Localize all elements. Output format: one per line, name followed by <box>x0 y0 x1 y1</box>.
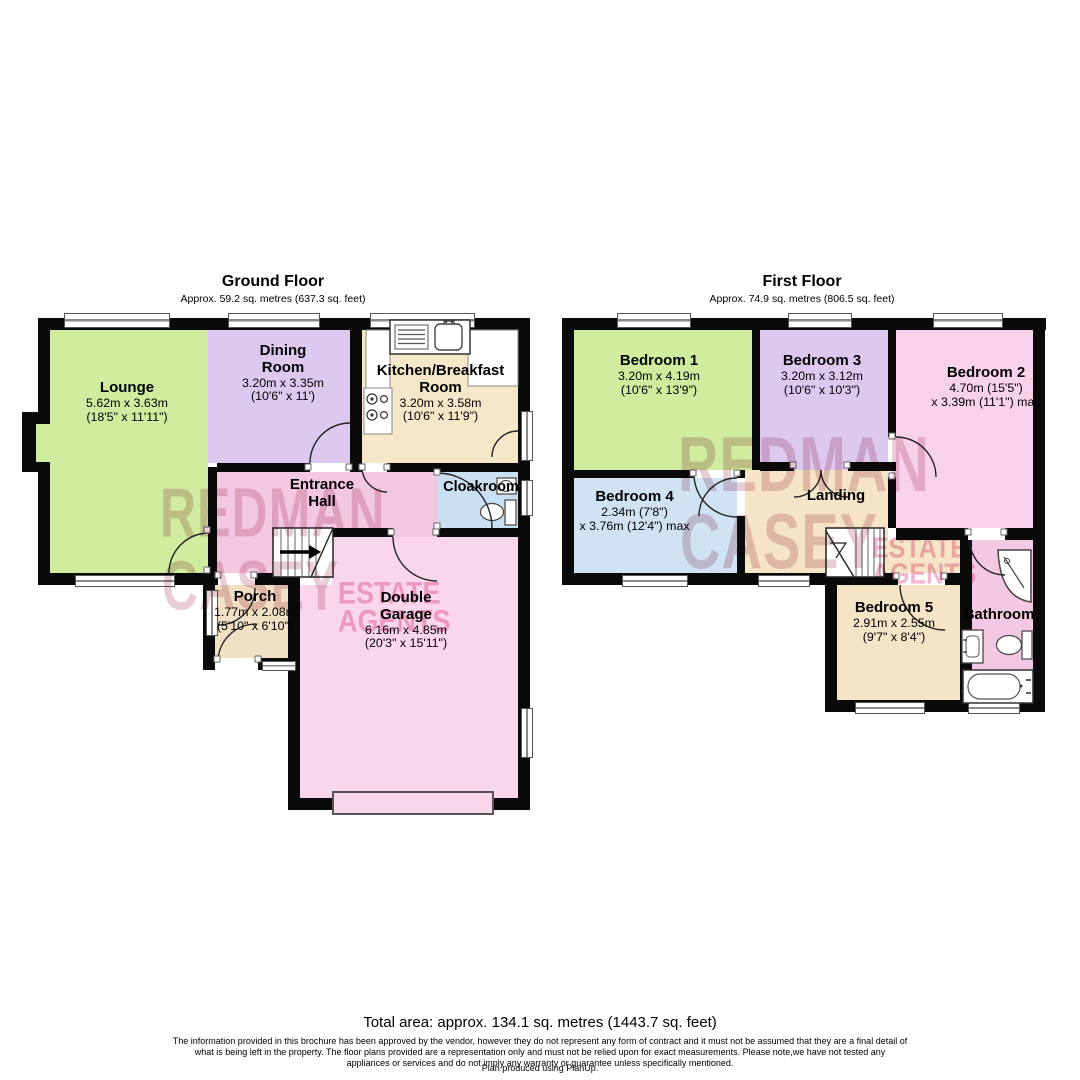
room-name: Bedroom 1 <box>599 353 719 370</box>
wall <box>945 573 960 585</box>
room-bedroom1 <box>574 330 752 470</box>
floorplan-canvas: Ground Floor Approx. 59.2 sq. metres (63… <box>0 0 1080 1080</box>
wall <box>848 462 896 471</box>
room-dim-imperial: x 3.39m (11'1") max <box>921 396 1051 410</box>
room-dim-metric: 5.62m x 3.63m <box>47 397 207 411</box>
room-dim-imperial: (10'6" x 11') <box>223 390 343 404</box>
room-dim-imperial: (20'3" x 15'11") <box>346 637 466 651</box>
room-name: Bedroom 5 <box>834 600 954 617</box>
produced-by-text: Plan produced using PlanUp. <box>0 1063 1080 1073</box>
room-name: Lounge <box>47 380 207 397</box>
first-floor-heading: First Floor Approx. 74.9 sq. metres (806… <box>652 273 952 305</box>
wall <box>385 528 393 537</box>
room-dim-imperial: x 3.76m (12'4") max <box>572 520 697 534</box>
wall <box>562 330 574 585</box>
wall <box>760 462 794 471</box>
window <box>262 661 296 671</box>
room-hall-garage-opening <box>393 528 437 537</box>
room-entrance-hall-lower <box>217 528 273 573</box>
room-name: Dining Room <box>247 343 319 377</box>
room-name: Landing <box>786 488 886 505</box>
wall <box>562 470 694 478</box>
wall <box>888 318 896 437</box>
wall <box>737 470 745 478</box>
room-label-bedroom5: Bedroom 5 2.91m x 2.55m (9'7" x 8'4") <box>834 600 954 645</box>
room-name: Kitchen/Breakfast Room <box>363 363 518 397</box>
room-dim-metric: 2.34m (7'8") <box>572 506 697 520</box>
stairs-ground <box>273 528 333 577</box>
room-dim-metric: 3.20m x 3.12m <box>762 370 882 384</box>
room-name: Cloakroom <box>426 479 536 495</box>
room-dim-metric: 1.77m x 2.08m <box>195 606 315 620</box>
window <box>521 411 533 461</box>
window <box>933 313 1003 328</box>
window <box>370 313 475 328</box>
window <box>64 313 170 328</box>
room-lounge <box>50 330 208 573</box>
room-garage-upper <box>332 537 518 585</box>
total-area-text: Total area: approx. 134.1 sq. metres (14… <box>0 1014 1080 1031</box>
window <box>788 313 852 328</box>
room-dim-imperial: (18'5" x 11'11") <box>47 411 207 425</box>
wall <box>437 528 518 537</box>
first-floor-area: Approx. 74.9 sq. metres (806.5 sq. feet) <box>652 293 952 305</box>
room-dim-imperial: (10'6" x 10'3") <box>762 384 882 398</box>
wall <box>350 318 362 472</box>
room-dim-metric: 6.16m x 4.85m <box>346 624 466 638</box>
room-dim-imperial: (10'6" x 13'9") <box>599 384 719 398</box>
room-dim-metric: 4.70m (15'5") <box>921 382 1051 396</box>
wall <box>1005 528 1045 540</box>
stairs-direction-arrow-icon <box>309 545 321 559</box>
room-landing <box>745 470 888 573</box>
room-label-cloakroom: Cloakroom <box>426 479 536 495</box>
room-bedroom2 <box>896 330 1033 528</box>
room-dim-metric: 3.20m x 4.19m <box>599 370 719 384</box>
room-name: Bathroom <box>944 607 1054 624</box>
room-name: Double Garage <box>371 590 441 624</box>
room-label-kitchen: Kitchen/Breakfast Room 3.20m x 3.58m (10… <box>363 363 518 424</box>
room-label-lounge: Lounge 5.62m x 3.63m (18'5" x 11'11") <box>47 380 207 425</box>
wall <box>752 318 760 470</box>
wall <box>208 467 217 573</box>
room-dim-metric: 3.20m x 3.58m <box>363 397 518 411</box>
wall <box>896 528 968 540</box>
room-name: Porch <box>195 589 315 606</box>
room-label-bedroom4: Bedroom 4 2.34m (7'8") x 3.76m (12'4") m… <box>572 489 697 534</box>
wall <box>387 463 518 472</box>
ground-floor-area: Approx. 59.2 sq. metres (637.3 sq. feet) <box>123 293 423 305</box>
room-dim-metric: 3.20m x 3.35m <box>223 377 343 391</box>
room-dim-imperial: (5'10" x 6'10") <box>195 620 315 634</box>
room-name: Entrance Hall <box>286 477 358 511</box>
wall <box>217 463 310 472</box>
room-label-landing: Landing <box>786 488 886 505</box>
room-landing-corridor <box>888 540 960 573</box>
garage-door <box>332 791 494 815</box>
room-bedroom3 <box>760 330 888 470</box>
room-dim-imperial: (9'7" x 8'4") <box>834 631 954 645</box>
room-name: Bedroom 3 <box>762 353 882 370</box>
first-floor-title: First Floor <box>652 273 952 291</box>
window <box>758 575 810 587</box>
room-label-bedroom3: Bedroom 3 3.20m x 3.12m (10'6" x 10'3") <box>762 353 882 398</box>
room-label-bedroom1: Bedroom 1 3.20m x 4.19m (10'6" x 13'9") <box>599 353 719 398</box>
wall <box>203 658 215 670</box>
chimney-recess <box>36 424 52 462</box>
room-dim-metric: 2.91m x 2.55m <box>834 617 954 631</box>
window <box>521 708 533 758</box>
room-label-bedroom2: Bedroom 2 4.70m (15'5") x 3.39m (11'1") … <box>921 365 1051 410</box>
room-label-entrance-hall: Entrance Hall <box>277 477 367 511</box>
ground-floor-title: Ground Floor <box>123 273 423 291</box>
ground-floor-heading: Ground Floor Approx. 59.2 sq. metres (63… <box>123 273 423 305</box>
room-label-bathroom: Bathroom <box>944 607 1054 624</box>
wall <box>332 528 385 537</box>
wall <box>737 516 745 585</box>
window <box>75 575 175 587</box>
window <box>617 313 691 328</box>
room-dim-imperial: (10'6" x 11'9") <box>363 410 518 424</box>
room-label-dining: Dining Room 3.20m x 3.35m (10'6" x 11') <box>223 343 343 404</box>
window <box>228 313 320 328</box>
room-label-porch: Porch 1.77m x 2.08m (5'10" x 6'10") <box>195 589 315 634</box>
wall <box>888 477 896 528</box>
window <box>855 702 925 714</box>
wall <box>837 573 898 585</box>
window <box>622 575 688 587</box>
window <box>968 702 1020 714</box>
wall <box>255 573 300 585</box>
room-label-double-garage: Double Garage 6.16m x 4.85m (20'3" x 15'… <box>346 590 466 651</box>
room-name: Bedroom 4 <box>572 489 697 506</box>
room-name: Bedroom 2 <box>921 365 1051 382</box>
